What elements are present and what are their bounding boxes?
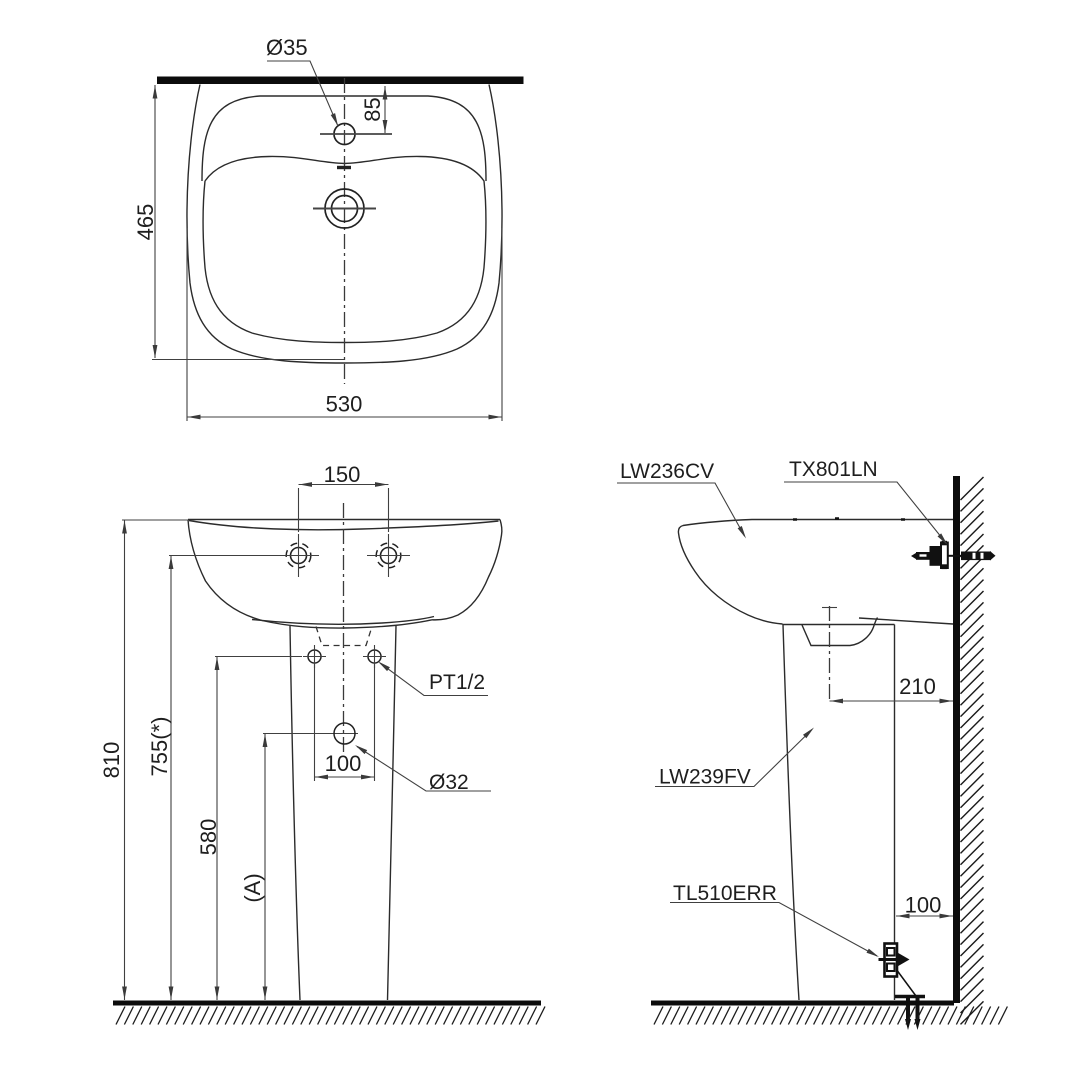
- svg-text:530: 530: [326, 392, 363, 417]
- svg-text:Ø32: Ø32: [429, 771, 469, 794]
- svg-text:580: 580: [196, 819, 221, 856]
- svg-text:Ø35: Ø35: [266, 35, 308, 60]
- svg-text:465: 465: [133, 204, 158, 241]
- svg-text:150: 150: [324, 462, 361, 487]
- svg-text:LW236CV: LW236CV: [620, 460, 714, 483]
- svg-text:755(*): 755(*): [147, 717, 172, 777]
- svg-text:210: 210: [899, 674, 936, 699]
- svg-text:LW239FV: LW239FV: [659, 766, 751, 789]
- svg-text:TX801LN: TX801LN: [789, 458, 878, 481]
- svg-text:85: 85: [360, 97, 385, 121]
- svg-text:TL510ERR: TL510ERR: [673, 882, 777, 905]
- svg-text:100: 100: [325, 751, 362, 776]
- svg-text:PT1/2: PT1/2: [429, 671, 485, 694]
- svg-text:810: 810: [99, 742, 124, 779]
- svg-text:100: 100: [905, 893, 942, 918]
- svg-text:(A): (A): [240, 873, 265, 902]
